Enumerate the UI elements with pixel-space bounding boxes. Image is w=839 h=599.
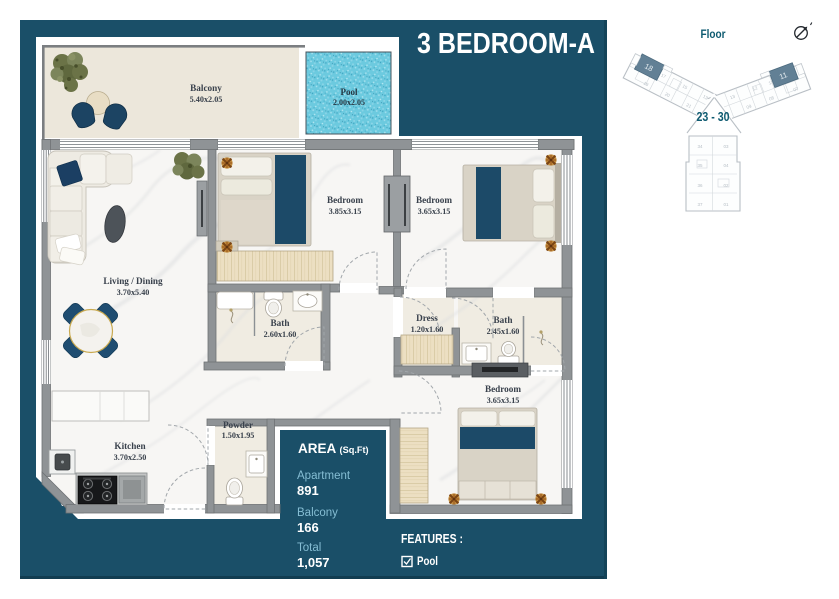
svg-text:Balcony: Balcony [190,83,222,93]
svg-text:2.60x1.60: 2.60x1.60 [264,330,297,339]
svg-text:3.65x3.15: 3.65x3.15 [487,396,520,405]
svg-text:2.45x1.60: 2.45x1.60 [487,327,520,336]
svg-text:1.20x1.60: 1.20x1.60 [411,325,444,334]
svg-text:1.50x1.95: 1.50x1.95 [222,431,255,440]
svg-text:02: 02 [723,183,729,188]
svg-text:Powder: Powder [223,420,253,430]
svg-text:Total: Total [297,542,321,554]
svg-text:37: 37 [697,202,703,207]
svg-text:35: 35 [697,163,703,168]
svg-text:891: 891 [297,483,319,498]
svg-text:Living / Dining: Living / Dining [103,276,163,286]
svg-text:5.40x2.05: 5.40x2.05 [190,95,223,104]
svg-text:1,057: 1,057 [297,555,330,570]
svg-text:2.00x2.05: 2.00x2.05 [333,98,365,107]
svg-text:3.85x3.15: 3.85x3.15 [329,207,362,216]
svg-text:Kitchen: Kitchen [114,441,145,451]
svg-text:04: 04 [723,163,729,168]
svg-text:Bedroom: Bedroom [416,195,452,205]
svg-text:Pool: Pool [417,556,438,568]
svg-text:01: 01 [723,202,729,207]
svg-text:34: 34 [697,144,703,149]
svg-text:36: 36 [697,183,703,188]
svg-text:3.65x3.15: 3.65x3.15 [418,207,451,216]
svg-text:Bedroom: Bedroom [327,195,363,205]
svg-text:Bath: Bath [494,315,513,325]
svg-text:23 - 30: 23 - 30 [697,110,730,124]
svg-text:3.70x5.40: 3.70x5.40 [117,288,150,297]
svg-text:Balcony: Balcony [297,507,338,519]
svg-text:Pool: Pool [341,87,358,97]
svg-text:Dress: Dress [416,313,438,323]
svg-text:Bath: Bath [271,318,290,328]
svg-text:166: 166 [297,520,319,535]
svg-text:Bedroom: Bedroom [485,384,521,394]
svg-text:Floor: Floor [701,27,726,41]
svg-text:3.70x2.50: 3.70x2.50 [114,453,147,462]
svg-text:Apartment: Apartment [297,470,351,482]
svg-text:3 BEDROOM-A: 3 BEDROOM-A [417,28,595,60]
svg-text:03: 03 [723,144,729,149]
svg-text:FEATURES :: FEATURES : [401,532,463,546]
